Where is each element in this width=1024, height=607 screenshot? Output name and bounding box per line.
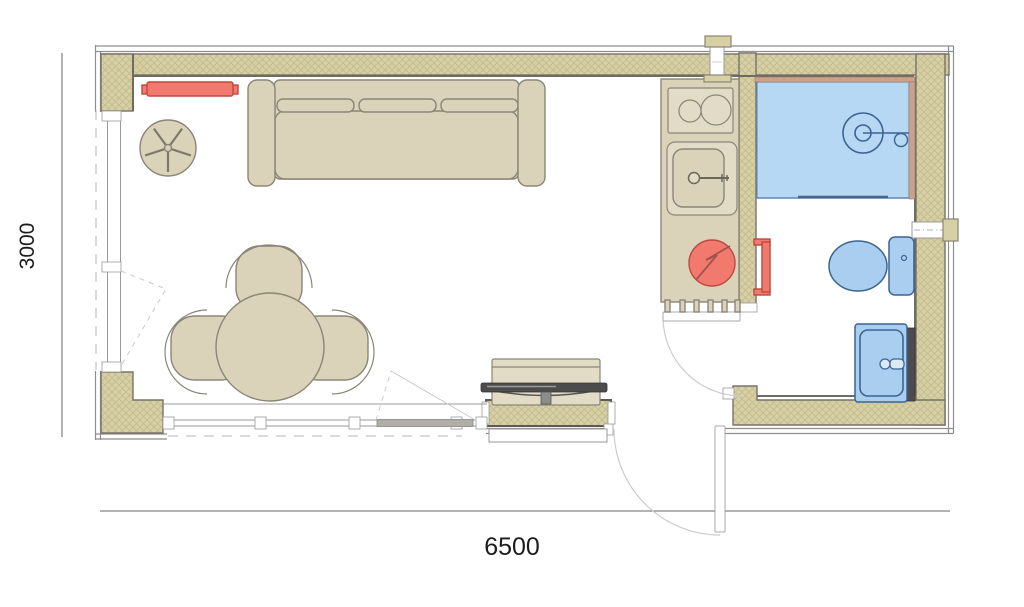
sofa-armrest bbox=[248, 80, 275, 186]
wall-radiator bbox=[142, 82, 238, 96]
dimension-width: 6500 bbox=[100, 511, 950, 561]
faucet bbox=[689, 173, 700, 184]
shower-head bbox=[895, 134, 908, 147]
top-left-column bbox=[101, 54, 133, 111]
washbasin bbox=[855, 324, 915, 402]
shower bbox=[755, 77, 915, 199]
entry-door bbox=[614, 426, 725, 535]
window-opening-indicator bbox=[121, 271, 166, 366]
window-bottom bbox=[163, 371, 487, 436]
floor-plan-page: 3000 6500 bbox=[0, 0, 1024, 607]
cooktop bbox=[668, 88, 733, 133]
bathroom-door bbox=[663, 312, 742, 396]
entry-door-leaf bbox=[715, 426, 725, 532]
toilet-tank bbox=[889, 237, 914, 295]
sofa-armrest bbox=[518, 80, 545, 186]
basin-handle bbox=[890, 359, 904, 369]
tv bbox=[481, 383, 607, 392]
tv-unit bbox=[481, 359, 607, 405]
top-wall bbox=[101, 54, 949, 75]
right-wall bbox=[916, 54, 945, 425]
divider-wall bbox=[739, 53, 756, 310]
wall-sleeve bbox=[912, 219, 958, 241]
exterior-step bbox=[489, 429, 607, 442]
kitchen-unit bbox=[661, 79, 740, 312]
sofa bbox=[248, 80, 545, 186]
bathroom-door-leaf bbox=[663, 312, 740, 321]
dining-table bbox=[216, 293, 324, 401]
sofa-cushion bbox=[277, 99, 354, 112]
dining-set bbox=[165, 245, 374, 401]
depth-label: 3000 bbox=[16, 223, 39, 270]
width-label: 6500 bbox=[484, 533, 540, 561]
operable-sash bbox=[377, 420, 473, 427]
tv-stand bbox=[541, 392, 551, 404]
swivel-chair bbox=[140, 120, 196, 176]
water-heater bbox=[689, 240, 735, 286]
dimension-depth: 3000 bbox=[16, 53, 62, 437]
toilet bbox=[829, 237, 914, 295]
toilet-bowl bbox=[829, 241, 887, 291]
sofa-cushion bbox=[359, 99, 436, 112]
sofa-cushion bbox=[441, 99, 518, 112]
bottom-left-corner bbox=[101, 372, 163, 433]
kitchen-sink bbox=[667, 142, 737, 215]
basin-faucet bbox=[880, 359, 890, 369]
floor-plan-canvas: 3000 6500 bbox=[0, 0, 1024, 607]
